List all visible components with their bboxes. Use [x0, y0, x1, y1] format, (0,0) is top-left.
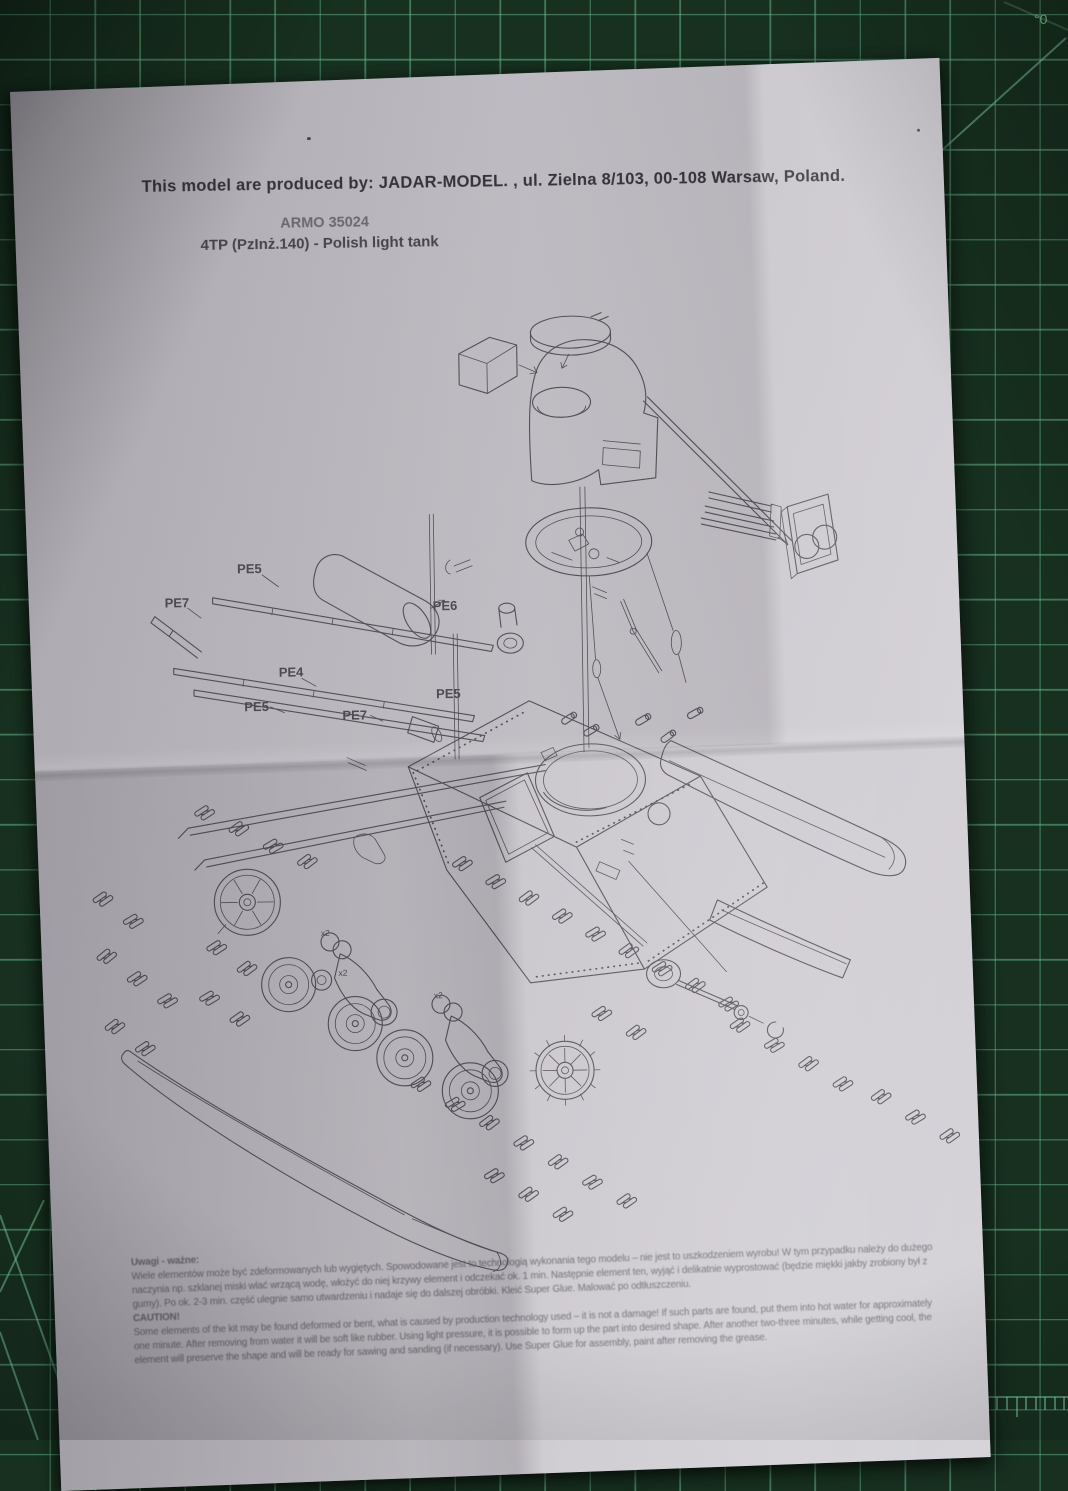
bogie [432, 994, 508, 1087]
small-cylinder-part [346, 716, 444, 771]
turret [528, 338, 659, 485]
mat-corner-label: °0 [1034, 11, 1048, 27]
pe-bracket-left [151, 616, 202, 659]
road-wheel [261, 957, 316, 1012]
small-screw-parts [560, 706, 704, 745]
photo-of-instruction-sheet: { "mat": { "corner_label": "°0", "base_c… [0, 0, 1068, 1440]
hull [407, 697, 768, 985]
part-label: PE4 [279, 664, 305, 679]
kit-number: ARMO 35024 [280, 214, 369, 231]
sheet-header: This model are produced by: JADAR-MODEL.… [142, 167, 846, 197]
turret-ring [525, 507, 652, 600]
idler-wheel [214, 869, 281, 936]
suspension-bracket [354, 834, 386, 864]
mat-angle-guide-top-right [940, 2, 1068, 152]
part-label: PE5 [237, 561, 262, 576]
exploded-diagram: PE5 PE7 PE6 PE4 PE5 PE7 PE5 [68, 277, 1003, 1289]
track-fender-band [122, 1045, 508, 1278]
part-label: PE6 [433, 598, 458, 613]
fender-right [660, 737, 906, 879]
pe-parts: PE5 PE7 PE6 PE4 PE5 PE7 PE5 [149, 513, 495, 773]
part-label: PE7 [165, 595, 190, 610]
producer-line: This model are produced by: JADAR-MODEL.… [142, 167, 846, 197]
quantity-label: x2 [338, 968, 347, 978]
part-label: PE7 [342, 707, 367, 722]
turret-rear-box [459, 337, 538, 394]
dust-speck [307, 137, 311, 140]
turret-support-rods [580, 485, 687, 752]
dust-speck [917, 129, 920, 132]
gun-mantlet-assembly [643, 394, 838, 581]
fender-lower [709, 898, 850, 980]
suspension-beams [177, 765, 547, 871]
return-roller-and-axle [531, 841, 783, 1042]
quantity-label: x2 [321, 928, 330, 938]
track-links [91, 792, 962, 1232]
road-wheel [442, 1062, 499, 1119]
instruction-sheet: This model are produced by: JADAR-MODEL.… [10, 58, 991, 1491]
sprocket-wheel [529, 1035, 600, 1106]
exhaust-muffler [313, 553, 445, 648]
part-label: PE5 [244, 699, 269, 714]
quantity-label: x2 [434, 990, 443, 1000]
kit-name: 4TP (PzInż.140) - Polish light tank [200, 233, 438, 254]
part-label: PE5 [436, 686, 461, 701]
road-wheel [376, 1029, 433, 1086]
road-wheel [328, 996, 383, 1051]
bogie [311, 932, 397, 1026]
